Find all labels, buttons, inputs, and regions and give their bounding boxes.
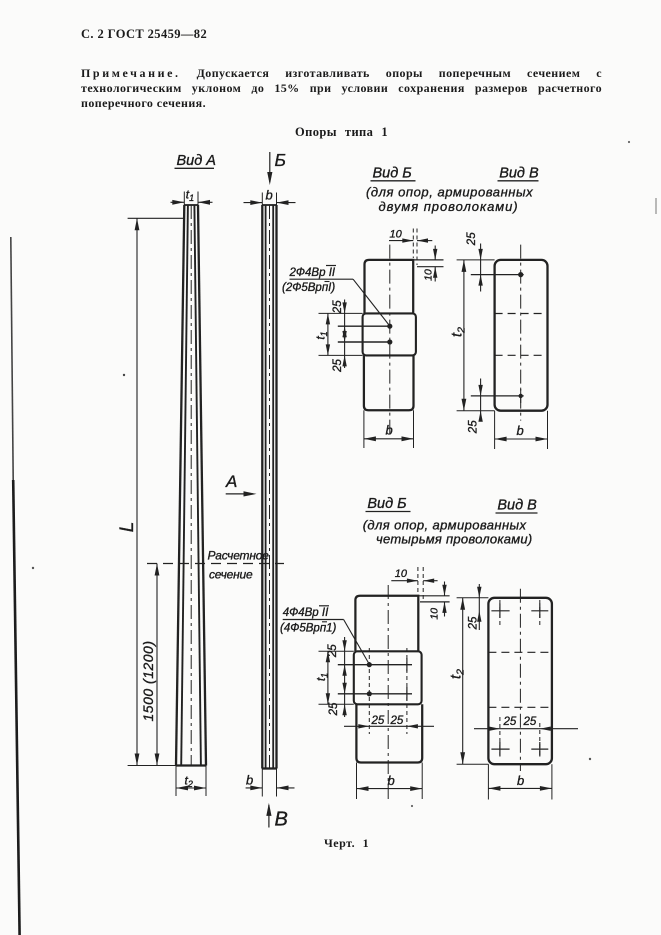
svg-text:В: В — [275, 809, 288, 831]
svg-text:b: b — [386, 423, 393, 438]
svg-text:b: b — [388, 773, 395, 788]
svg-text:25: 25 — [468, 420, 480, 434]
svg-text:Вид А: Вид А — [177, 153, 216, 169]
svg-text:t2: t2 — [449, 669, 467, 679]
svg-text:(для опор, армированных: (для опор, армированных — [366, 185, 533, 200]
svg-text:А: А — [225, 472, 237, 491]
svg-text:(для опор, армированных: (для опор, армированных — [363, 518, 527, 533]
svg-text:t1: t1 — [314, 673, 330, 681]
svg-text:Вид Б: Вид Б — [373, 166, 412, 182]
svg-text:2Ф4Вр II: 2Ф4Вр II — [289, 267, 336, 279]
svg-text:25: 25 — [390, 715, 404, 727]
svg-text:1500 (1200): 1500 (1200) — [140, 640, 156, 721]
svg-text:Расчетное: Расчетное — [208, 549, 270, 563]
svg-text:сечение: сечение — [209, 568, 253, 582]
svg-text:4Ф4Вр II: 4Ф4Вр II — [283, 607, 329, 619]
svg-text:Вид Б: Вид Б — [367, 496, 406, 512]
svg-text:10: 10 — [390, 229, 403, 241]
svg-text:25: 25 — [327, 644, 339, 658]
svg-text:t2: t2 — [185, 774, 193, 790]
svg-text:b: b — [266, 188, 273, 203]
svg-text:b: b — [246, 773, 253, 788]
svg-text:b: b — [517, 773, 524, 788]
svg-text:25: 25 — [332, 300, 344, 314]
svg-text:25: 25 — [328, 702, 340, 716]
svg-text:t1: t1 — [314, 331, 330, 339]
svg-text:b: b — [517, 423, 524, 438]
svg-text:25: 25 — [467, 616, 479, 630]
svg-text:10: 10 — [395, 568, 408, 580]
svg-text:Вид В: Вид В — [497, 498, 537, 514]
svg-text:10: 10 — [429, 608, 441, 620]
svg-text:25: 25 — [371, 715, 385, 727]
svg-text:Б: Б — [275, 150, 286, 170]
svg-text:двумя проволоками): двумя проволоками) — [379, 199, 519, 214]
svg-text:(2Ф5ВрпІ): (2Ф5ВрпІ) — [282, 282, 335, 294]
svg-text:L: L — [117, 522, 138, 533]
svg-text:25: 25 — [332, 359, 344, 373]
svg-text:25: 25 — [503, 716, 517, 728]
svg-text:10: 10 — [423, 269, 435, 281]
svg-text:четырьмя проволоками): четырьмя проволоками) — [376, 532, 532, 547]
svg-text:(4Ф5Врп1): (4Ф5Врп1) — [280, 623, 337, 635]
svg-text:t1: t1 — [186, 188, 194, 204]
svg-text:25: 25 — [466, 232, 478, 246]
svg-text:t2: t2 — [450, 327, 468, 337]
svg-text:Вид В: Вид В — [499, 166, 539, 182]
svg-text:25: 25 — [523, 716, 537, 728]
